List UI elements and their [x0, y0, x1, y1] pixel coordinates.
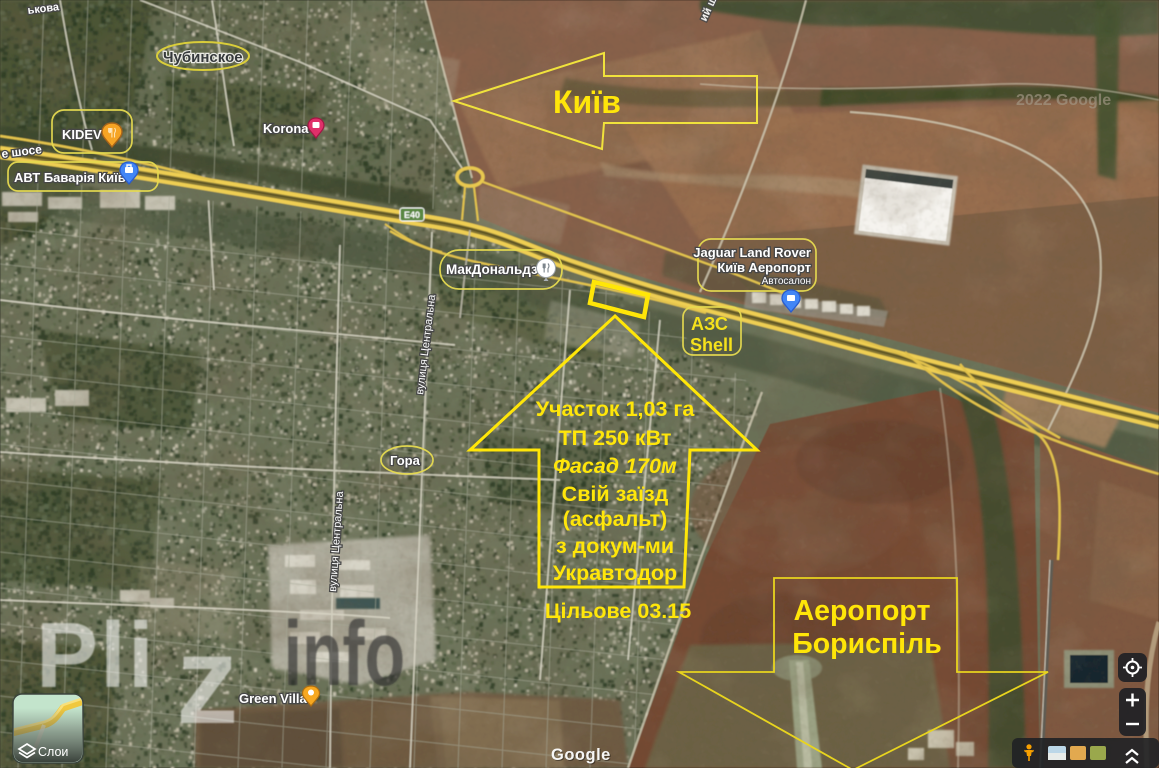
svg-text:Київ Аеропорт: Київ Аеропорт: [717, 260, 811, 275]
svg-text:Jaguar Land Rover: Jaguar Land Rover: [693, 245, 811, 260]
svg-text:Слои: Слои: [38, 745, 68, 759]
svg-text:Pli: Pli: [36, 603, 156, 707]
svg-text:Бориспіль: Бориспіль: [792, 628, 941, 660]
svg-text:Цільове 03.15: Цільове 03.15: [545, 599, 691, 623]
svg-text:z: z: [176, 611, 239, 750]
svg-text:Shell: Shell: [690, 335, 733, 355]
svg-text:АВТ Баварія Київ: АВТ Баварія Київ: [14, 170, 126, 185]
svg-text:Фасад 170м: Фасад 170м: [553, 454, 677, 478]
svg-text:Участок 1,03 га: Участок 1,03 га: [536, 397, 696, 421]
svg-text:KIDEV: KIDEV: [62, 127, 102, 142]
svg-text:Свій заїзд: Свій заїзд: [562, 482, 669, 506]
svg-text:ТП 250 кВт: ТП 250 кВт: [559, 426, 672, 450]
svg-text:(асфальт): (асфальт): [563, 507, 668, 531]
svg-text:МакДональдз: МакДональдз: [446, 262, 538, 277]
svg-text:Google: Google: [551, 746, 611, 764]
svg-text:Автосалон: Автосалон: [762, 276, 811, 287]
svg-text:Чубинское: Чубинское: [163, 49, 243, 66]
svg-text:Гора: Гора: [390, 453, 421, 468]
svg-text:Аеропорт: Аеропорт: [794, 595, 931, 627]
svg-text:info: info: [284, 601, 405, 704]
svg-text:Укравтодор: Укравтодор: [553, 561, 677, 585]
svg-text:з докум-ми: з докум-ми: [556, 534, 674, 558]
svg-text:Korona: Korona: [263, 121, 309, 136]
svg-text:Київ: Київ: [553, 84, 621, 120]
svg-text:2022 Google: 2022 Google: [1016, 92, 1111, 109]
svg-text:АЗС: АЗС: [691, 314, 728, 334]
svg-text:E40: E40: [404, 210, 420, 220]
